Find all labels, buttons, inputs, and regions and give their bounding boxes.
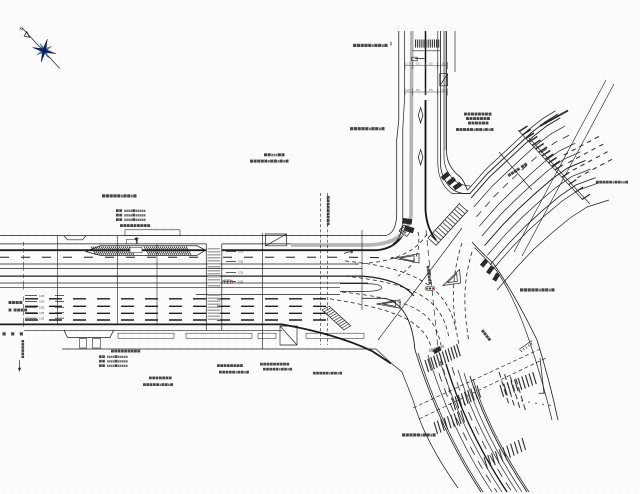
svg-text:3.25: 3.25: [238, 271, 244, 275]
svg-text:3.25: 3.25: [39, 311, 45, 315]
svg-text:1.5: 1.5: [407, 63, 411, 66]
svg-text:3.25: 3.25: [238, 280, 244, 284]
svg-text:3.25: 3.25: [238, 260, 244, 264]
svg-text:1.5: 1.5: [444, 63, 448, 66]
svg-text:5.5: 5.5: [416, 63, 420, 66]
svg-text:5.5: 5.5: [416, 89, 420, 92]
svg-text:3.25: 3.25: [238, 250, 244, 254]
svg-text:1.5: 1.5: [444, 89, 448, 92]
svg-text:3.25: 3.25: [39, 305, 45, 309]
svg-text:N: N: [20, 27, 23, 32]
svg-text:3.25: 3.25: [39, 300, 45, 304]
svg-text:5.5: 5.5: [429, 89, 433, 92]
svg-text:5.5: 5.5: [429, 63, 433, 66]
svg-text:3.25: 3.25: [39, 316, 45, 320]
svg-text:3.25: 3.25: [39, 294, 45, 298]
svg-text:1.5: 1.5: [407, 89, 411, 92]
